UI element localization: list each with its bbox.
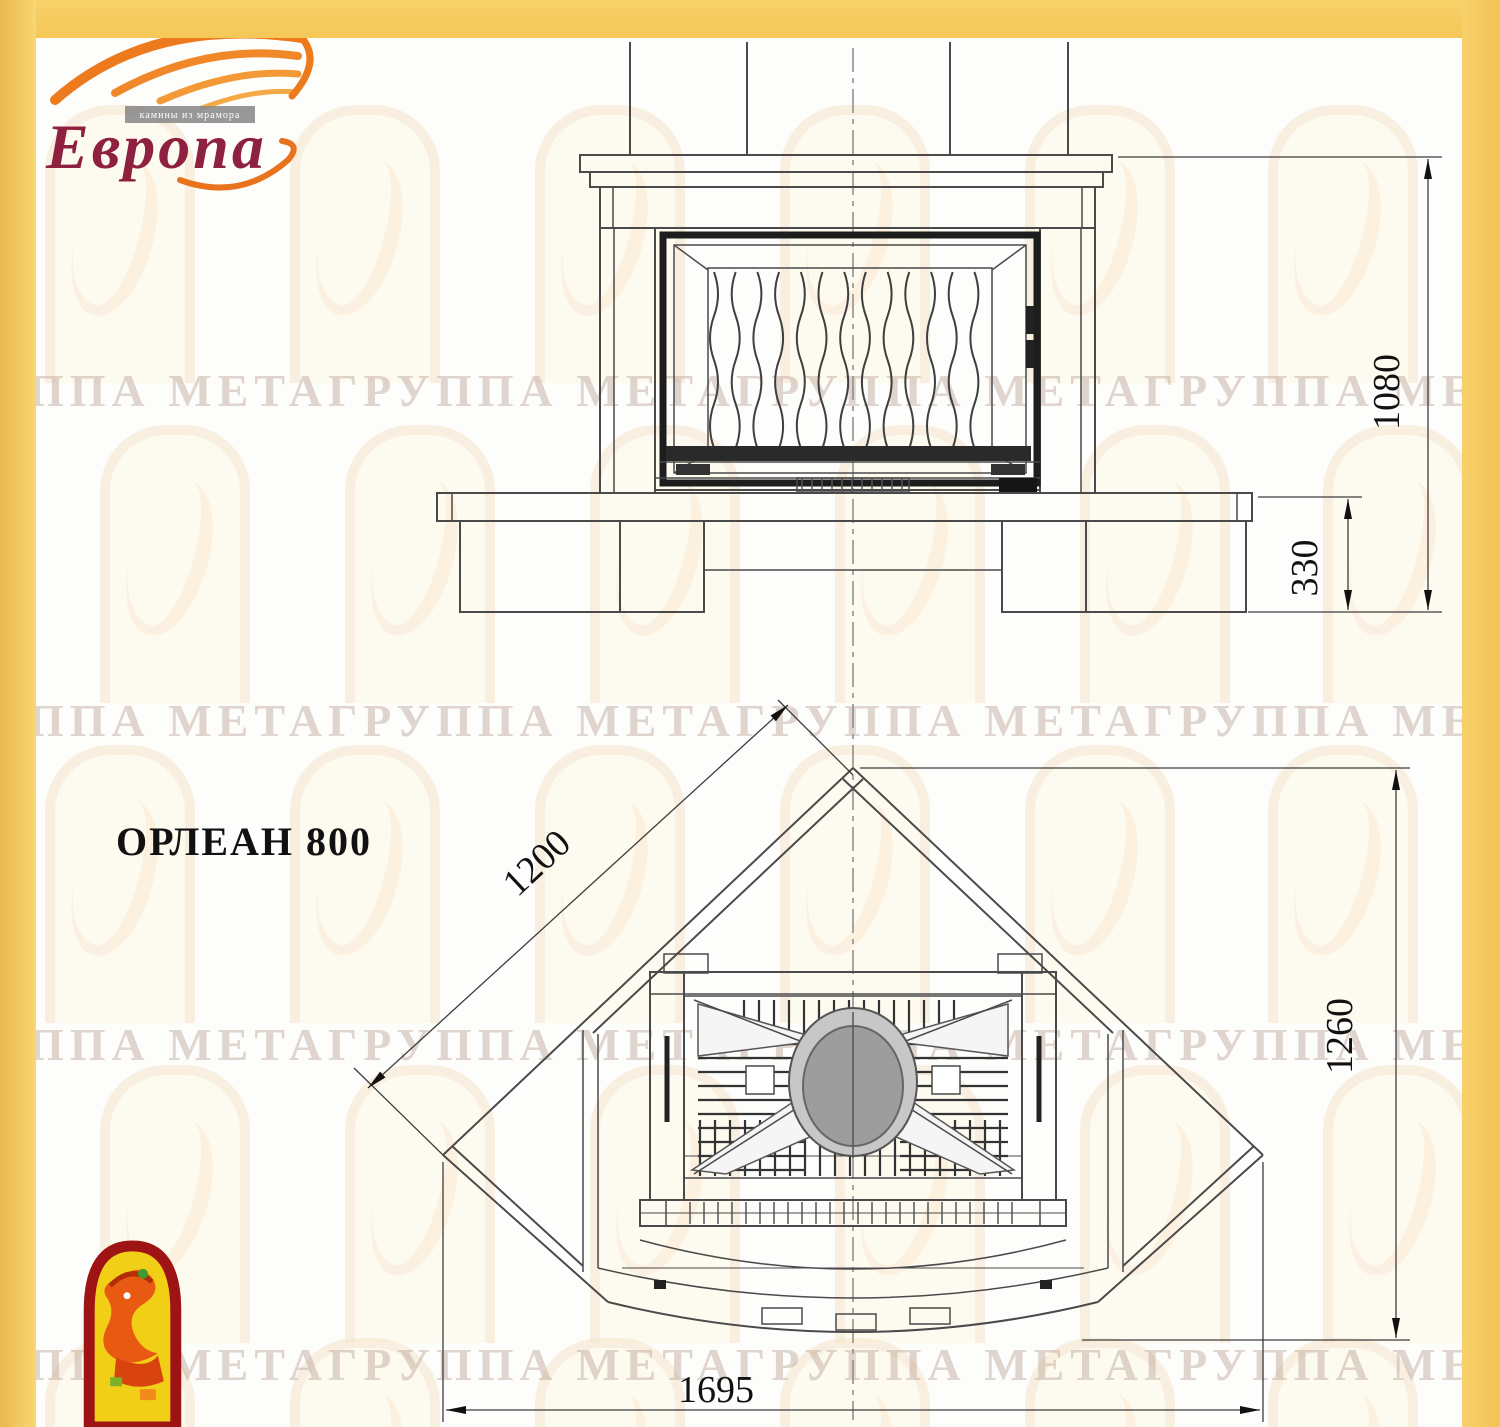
dimension-labels: 1080 330 1260 1200 1695 [495,354,1408,1411]
dim-side-wall: 1200 [495,822,579,905]
drawing-sheet: ГРУППА МЕТАГРУППА МЕТАГРУППА МЕТАГРУППА … [0,0,1500,1427]
front-view [437,42,1252,612]
technical-drawing: 1080 330 1260 1200 1695 [0,0,1500,1427]
frame-right [1462,0,1500,1427]
flame-grill [710,272,978,448]
model-title: ОРЛЕАН 800 [116,818,372,865]
frame-left [0,0,36,1427]
brand-logo: камины из мрамора Европа [30,8,330,208]
dim-base-height: 330 [1284,540,1326,597]
dim-height-total: 1080 [1366,354,1408,430]
brand-name: Европа [45,111,267,182]
dim-depth: 1260 [1319,998,1361,1074]
frame-top [0,0,1500,38]
dim-width: 1695 [678,1369,754,1411]
dimension-lines [354,157,1442,1422]
corner-emblem [80,1236,185,1427]
